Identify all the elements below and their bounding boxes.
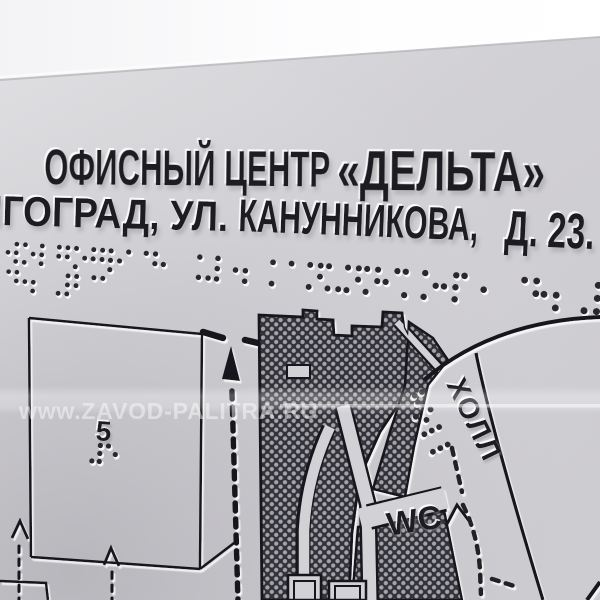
svg-text:КАНУННИКОВА,: КАНУННИКОВА, xyxy=(238,189,480,251)
svg-text:ВОЛГОГРАД, УЛ.: ВОЛГОГРАД, УЛ. xyxy=(0,185,229,240)
svg-text:www.ZAVOD-PALITRA.RU: www.ZAVOD-PALITRA.RU xyxy=(18,398,318,424)
svg-text:Д. 23.: Д. 23. xyxy=(504,200,596,260)
